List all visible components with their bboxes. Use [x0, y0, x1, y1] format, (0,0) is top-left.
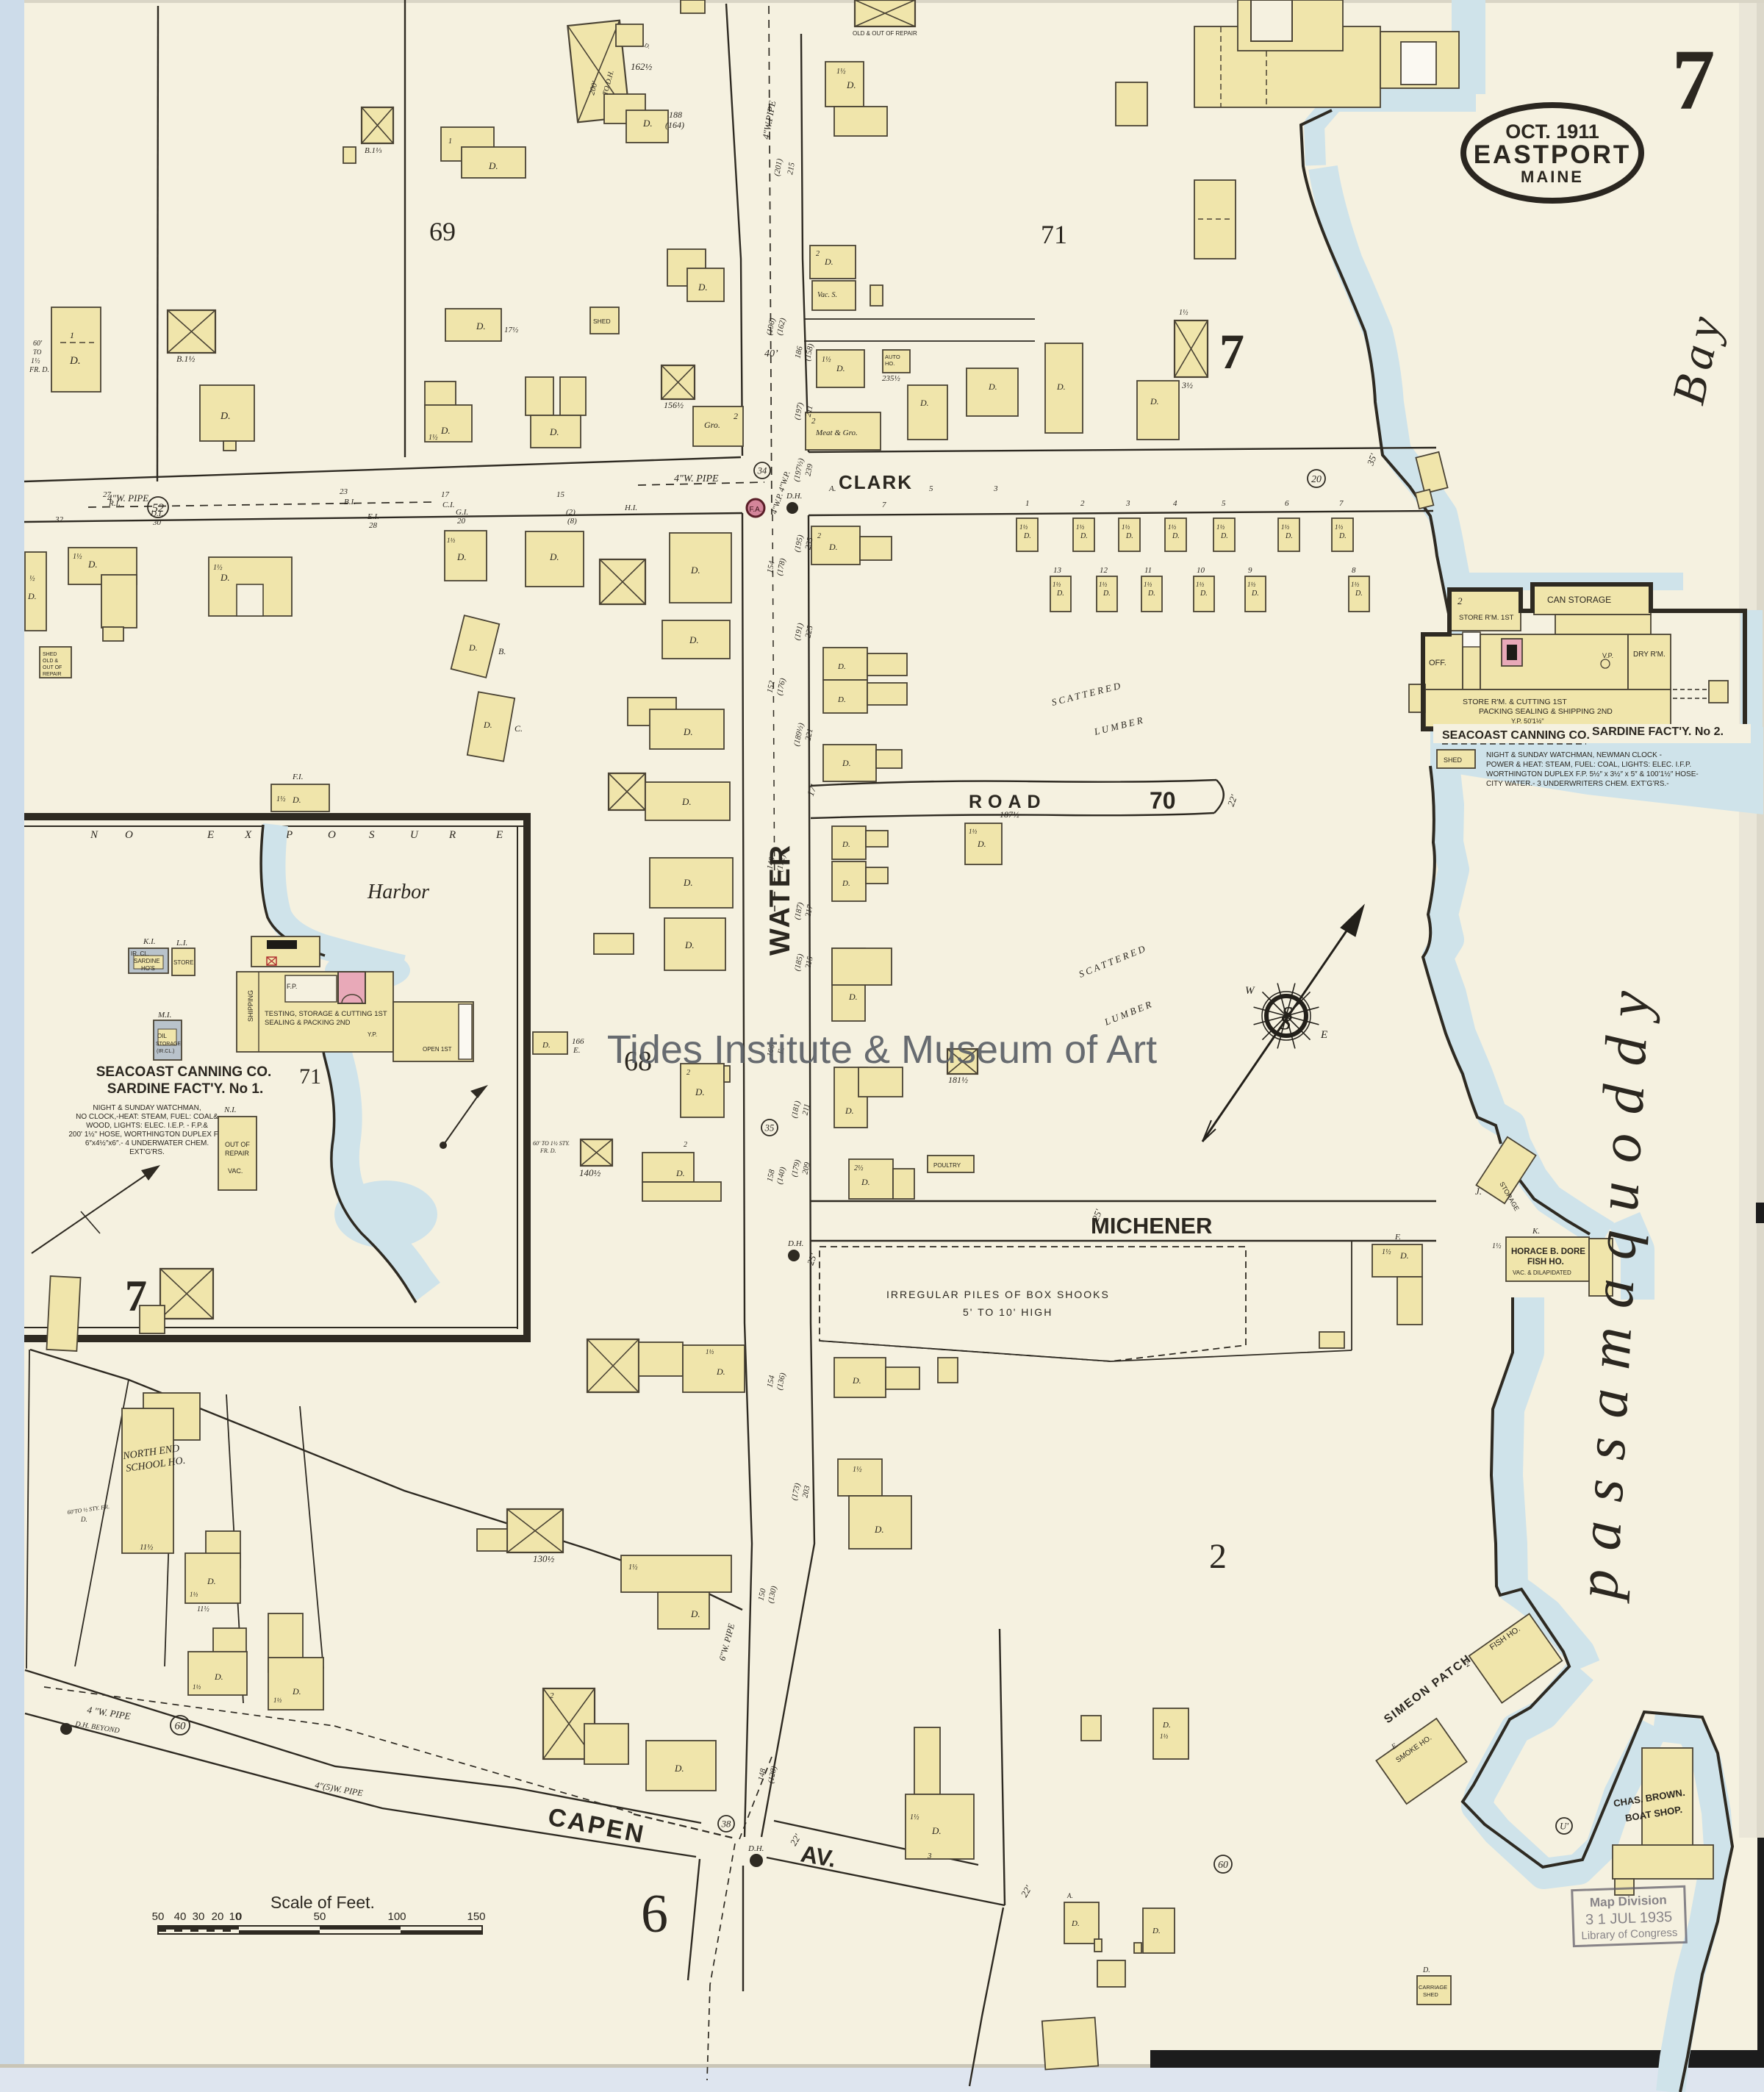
- svg-text:3: 3: [927, 1852, 932, 1860]
- svg-text:VAC. & DILAPIDATED: VAC. & DILAPIDATED: [1513, 1269, 1571, 1276]
- svg-text:SHED: SHED: [43, 652, 57, 657]
- svg-text:E.: E.: [573, 1046, 580, 1055]
- svg-text:2: 2: [684, 1141, 687, 1149]
- svg-text:D.: D.: [698, 282, 708, 293]
- svg-text:Tides Institute & Museum of Ar: Tides Institute & Museum of Art: [607, 1028, 1157, 1072]
- svg-text:69: 69: [429, 217, 456, 246]
- svg-text:1: 1: [1025, 499, 1030, 508]
- svg-text:D.: D.: [977, 839, 986, 849]
- svg-text:1½: 1½: [1492, 1242, 1502, 1250]
- svg-text:D.: D.: [1251, 590, 1259, 598]
- svg-text:1½: 1½: [1053, 581, 1061, 588]
- svg-text:30: 30: [152, 518, 162, 527]
- svg-text:K.: K.: [1532, 1227, 1540, 1236]
- svg-text:D.: D.: [1080, 532, 1088, 540]
- svg-text:4: 4: [1173, 499, 1177, 508]
- svg-text:D.: D.: [456, 551, 467, 562]
- svg-text:½: ½: [29, 575, 35, 583]
- svg-text:11: 11: [1144, 566, 1152, 575]
- svg-text:27: 27: [103, 490, 112, 499]
- svg-text:R: R: [448, 829, 456, 841]
- svg-text:1½: 1½: [853, 1466, 862, 1474]
- svg-text:1½: 1½: [836, 68, 846, 76]
- svg-text:B.1⅓: B.1⅓: [365, 146, 382, 155]
- svg-text:D.: D.: [292, 795, 301, 805]
- svg-text:W: W: [1245, 985, 1255, 997]
- svg-text:6″x4½″x6″.- 4 UNDERWATER CHEM.: 6″x4½″x6″.- 4 UNDERWATER CHEM.: [85, 1139, 209, 1147]
- svg-text:D.: D.: [861, 1177, 870, 1187]
- svg-text:1½: 1½: [1019, 523, 1028, 531]
- svg-text:N.I.: N.I.: [223, 1106, 237, 1114]
- svg-text:52: 52: [152, 502, 164, 515]
- svg-text:50: 50: [314, 1910, 326, 1923]
- svg-text:D.: D.: [27, 591, 37, 601]
- svg-text:(2): (2): [566, 508, 576, 517]
- svg-text:D.: D.: [674, 1763, 684, 1774]
- svg-text:D.: D.: [988, 381, 997, 392]
- svg-text:HO'S: HO'S: [141, 965, 155, 972]
- svg-text:HO.: HO.: [885, 360, 894, 367]
- svg-text:C.I.: C.I.: [442, 501, 455, 509]
- svg-text:5: 5: [929, 484, 933, 493]
- svg-text:SHIPPING: SHIPPING: [247, 990, 254, 1022]
- svg-text:2: 2: [550, 1691, 554, 1700]
- svg-text:17½: 17½: [504, 326, 518, 334]
- svg-text:1: 1: [70, 330, 74, 340]
- svg-text:100: 100: [387, 1910, 406, 1923]
- svg-text:D.: D.: [207, 1576, 216, 1586]
- svg-text:1: 1: [448, 137, 452, 146]
- svg-text:Vac. S.: Vac. S.: [817, 291, 837, 299]
- svg-text:1½: 1½: [1382, 1248, 1391, 1256]
- svg-text:U': U': [1560, 1821, 1568, 1832]
- svg-text:F.I.: F.I.: [292, 773, 303, 781]
- svg-text:F.A.: F.A.: [749, 506, 761, 514]
- svg-text:D.: D.: [842, 758, 851, 768]
- svg-text:AUTO: AUTO: [885, 354, 900, 360]
- svg-text:D.: D.: [468, 642, 478, 653]
- svg-text:CARRIAGE: CARRIAGE: [1419, 1984, 1447, 1991]
- svg-text:2: 2: [1458, 595, 1463, 606]
- svg-text:D.: D.: [69, 355, 81, 367]
- svg-text:D.: D.: [852, 1375, 861, 1386]
- svg-text:187½: 187½: [1000, 809, 1019, 820]
- svg-text:D.: D.: [874, 1524, 884, 1535]
- svg-text:1½: 1½: [1196, 581, 1205, 588]
- svg-text:D.: D.: [87, 559, 98, 570]
- svg-text:OLD & OUT OF REPAIR: OLD & OUT OF REPAIR: [853, 30, 917, 37]
- svg-text:D.: D.: [80, 1516, 87, 1523]
- svg-text:D.: D.: [695, 1086, 705, 1097]
- svg-text:STORAGE: STORAGE: [156, 1042, 181, 1047]
- svg-text:F.: F.: [1394, 1233, 1401, 1242]
- svg-text:NIGHT & SUNDAY WATCHMAN,: NIGHT & SUNDAY WATCHMAN,: [93, 1104, 201, 1112]
- svg-text:D.: D.: [1056, 381, 1066, 392]
- svg-text:Map Division: Map Division: [1590, 1893, 1667, 1910]
- svg-text:Harbor: Harbor: [367, 881, 429, 903]
- svg-text:28: 28: [369, 521, 378, 530]
- svg-text:D.: D.: [1355, 590, 1363, 598]
- svg-text:38: 38: [721, 1819, 731, 1830]
- svg-text:60' TO 1½ STY.: 60' TO 1½ STY.: [533, 1140, 570, 1147]
- svg-text:MAINE: MAINE: [1521, 168, 1584, 186]
- svg-text:D.: D.: [292, 1686, 301, 1697]
- svg-text:D.: D.: [842, 840, 850, 849]
- svg-text:1½: 1½: [822, 356, 831, 364]
- svg-text:200' 1½" HOSE, WORTHINGTON DUP: 200' 1½" HOSE, WORTHINGTON DUPLEX F.P.: [68, 1131, 225, 1139]
- svg-text:L.I.: L.I.: [176, 939, 187, 948]
- svg-text:D.: D.: [542, 1041, 551, 1050]
- svg-text:NO CLOCK,-HEAT: STEAM, FUEL: C: NO CLOCK,-HEAT: STEAM, FUEL: COAL&: [76, 1113, 218, 1121]
- svg-text:Scale of Feet.: Scale of Feet.: [270, 1893, 375, 1912]
- svg-text:REPAIR: REPAIR: [43, 672, 62, 677]
- svg-text:1½: 1½: [1216, 523, 1225, 531]
- svg-text:7: 7: [1672, 32, 1715, 128]
- svg-text:1½: 1½: [1099, 581, 1108, 588]
- svg-text:E: E: [207, 829, 214, 841]
- svg-text:Y.P. 50'1½": Y.P. 50'1½": [1511, 717, 1544, 725]
- svg-text:1½: 1½: [910, 1813, 919, 1821]
- svg-text:E: E: [1320, 1029, 1327, 1041]
- svg-text:E.I.: E.I.: [367, 512, 379, 521]
- svg-text:D.: D.: [848, 992, 858, 1002]
- svg-text:H.I.: H.I.: [624, 504, 637, 512]
- svg-text:12: 12: [1100, 566, 1108, 575]
- svg-text:34: 34: [757, 466, 767, 476]
- svg-text:B.1½: B.1½: [176, 354, 195, 364]
- svg-text:6: 6: [1285, 499, 1289, 508]
- svg-text:9: 9: [1248, 566, 1252, 575]
- svg-text:IR. CL.: IR. CL.: [131, 950, 149, 957]
- svg-text:POULTRY: POULTRY: [933, 1162, 961, 1169]
- svg-text:D.: D.: [1150, 396, 1159, 406]
- svg-text:CITY WATER.- 3 UNDERWRITERS CH: CITY WATER.- 3 UNDERWRITERS CHEM. EXT’G’…: [1486, 780, 1669, 788]
- svg-text:EXT'G'RS.: EXT'G'RS.: [129, 1148, 165, 1156]
- svg-text:D.: D.: [483, 720, 492, 730]
- svg-text:D.: D.: [842, 879, 850, 888]
- svg-text:Meat & Gro.: Meat & Gro.: [815, 429, 858, 437]
- svg-text:2: 2: [816, 250, 820, 258]
- svg-text:D.: D.: [683, 726, 693, 737]
- svg-text:70: 70: [1150, 787, 1176, 814]
- svg-text:1½: 1½: [1076, 523, 1085, 531]
- svg-text:O: O: [328, 829, 336, 841]
- svg-text:SARDINE FACT'Y. No 1.: SARDINE FACT'Y. No 1.: [107, 1081, 264, 1097]
- svg-text:D.: D.: [824, 257, 833, 267]
- svg-text:U: U: [410, 829, 419, 841]
- svg-text:C.: C.: [514, 723, 523, 734]
- svg-text:D.: D.: [1152, 1927, 1161, 1935]
- svg-text:M.I.: M.I.: [157, 1011, 171, 1020]
- svg-text:11½: 11½: [140, 1543, 153, 1552]
- svg-text:60': 60': [33, 340, 43, 348]
- svg-text:1½: 1½: [31, 357, 40, 365]
- svg-text:71: 71: [299, 1064, 321, 1089]
- svg-text:D.: D.: [476, 320, 486, 332]
- svg-text:WORTHINGTON DUPLEX F.P. 5½″ x: WORTHINGTON DUPLEX F.P. 5½″ x 3½″ x 5″ &…: [1486, 770, 1699, 778]
- svg-text:D.: D.: [214, 1672, 223, 1682]
- svg-text:60: 60: [175, 1720, 186, 1732]
- svg-text:1½: 1½: [1351, 581, 1360, 588]
- svg-text:(IR.CL.): (IR.CL.): [157, 1049, 175, 1054]
- svg-text:D.H.: D.H.: [787, 1239, 803, 1248]
- svg-text:OCT. 1911: OCT. 1911: [1505, 121, 1599, 143]
- svg-text:2: 2: [1209, 1537, 1227, 1576]
- svg-text:D.: D.: [1071, 1919, 1080, 1928]
- svg-text:D.: D.: [440, 425, 451, 436]
- svg-text:D.: D.: [1399, 1250, 1409, 1261]
- svg-text:D.: D.: [1125, 532, 1133, 540]
- svg-text:11½: 11½: [197, 1605, 209, 1613]
- svg-text:Y.P.: Y.P.: [367, 1031, 377, 1038]
- svg-text:SHED: SHED: [1444, 756, 1463, 764]
- svg-text:20: 20: [1311, 473, 1322, 484]
- svg-text:D.: D.: [1172, 532, 1180, 540]
- svg-text:D.: D.: [1220, 532, 1228, 540]
- svg-text:5' TO 10' HIGH: 5' TO 10' HIGH: [963, 1306, 1053, 1318]
- svg-text:2: 2: [817, 532, 821, 540]
- svg-text:15: 15: [556, 490, 565, 499]
- svg-text:N: N: [90, 829, 98, 841]
- svg-text:D.H.: D.H.: [786, 492, 802, 501]
- svg-text:R.I.: R.I.: [108, 499, 121, 508]
- svg-text:D.: D.: [549, 426, 559, 437]
- svg-text:1½: 1½: [273, 1697, 282, 1704]
- svg-text:35: 35: [764, 1123, 775, 1133]
- svg-text:DRY R'M.: DRY R'M.: [1633, 651, 1666, 659]
- svg-text:D.: D.: [488, 160, 498, 171]
- svg-text:A.: A.: [828, 484, 836, 493]
- svg-text:2: 2: [734, 411, 738, 421]
- svg-text:166: 166: [572, 1037, 584, 1046]
- svg-text:D.: D.: [1285, 532, 1293, 540]
- svg-text:3 1 JUL 1935: 3 1 JUL 1935: [1585, 1909, 1673, 1928]
- svg-text:IRREGULAR PILES OF BO: IRREGULAR PILES OF BOX SHOOKS: [886, 1289, 1110, 1300]
- svg-text:D.: D.: [919, 398, 929, 408]
- svg-text:40: 40: [174, 1910, 187, 1923]
- svg-text:156½: 156½: [664, 400, 684, 410]
- svg-text:1½: 1½: [628, 1563, 638, 1572]
- svg-text:17: 17: [441, 490, 450, 499]
- svg-text:D.: D.: [828, 542, 838, 552]
- svg-text:1½: 1½: [213, 564, 223, 572]
- svg-text:D.: D.: [837, 662, 846, 671]
- svg-text:D.: D.: [1102, 590, 1111, 598]
- svg-text:OUT OF: OUT OF: [225, 1141, 250, 1148]
- svg-text:5: 5: [1222, 499, 1226, 508]
- svg-text:FISH HO.: FISH HO.: [1527, 1258, 1564, 1267]
- svg-text:STORE R'M. & CUTTING 1ST: STORE R'M. & CUTTING 1ST: [1463, 698, 1567, 706]
- svg-text:K.I.: K.I.: [143, 937, 156, 946]
- svg-text:O: O: [125, 829, 133, 841]
- svg-text:B.: B.: [498, 646, 506, 656]
- svg-text:STORE R'M. 1ST: STORE R'M. 1ST: [1459, 614, 1514, 622]
- svg-text:SEACOAST CANNING CO.: SEACOAST CANNING CO.: [1442, 729, 1590, 742]
- svg-text:1½: 1½: [1179, 309, 1188, 317]
- svg-text:60: 60: [1218, 1859, 1228, 1870]
- svg-text:32: 32: [54, 515, 64, 524]
- svg-text:X: X: [244, 829, 252, 841]
- svg-text:D.: D.: [549, 551, 559, 562]
- svg-text:D.: D.: [1338, 532, 1347, 540]
- svg-text:3½: 3½: [1181, 380, 1193, 390]
- svg-text:E: E: [495, 829, 503, 841]
- svg-text:PACKING SEALING & SHIPPING 2ND: PACKING SEALING & SHIPPING 2ND: [1479, 707, 1613, 716]
- svg-text:3: 3: [1125, 499, 1130, 508]
- svg-text:D.: D.: [1056, 590, 1064, 598]
- svg-text:71: 71: [1041, 220, 1067, 249]
- svg-text:D.H.: D.H.: [747, 1844, 764, 1853]
- svg-text:F.P.: F.P.: [287, 983, 297, 990]
- svg-text:STORE: STORE: [173, 959, 193, 966]
- svg-text:13: 13: [1053, 566, 1062, 575]
- svg-text:1½: 1½: [429, 434, 438, 442]
- svg-text:CAN STORAGE: CAN STORAGE: [1547, 595, 1611, 605]
- svg-text:1½: 1½: [193, 1683, 201, 1691]
- svg-text:POWER & HEAT: STEAM, FUEL: COA: POWER & HEAT: STEAM, FUEL: COAL, LIGHTS:…: [1486, 761, 1691, 769]
- svg-text:D.: D.: [690, 565, 700, 576]
- svg-text:D.: D.: [642, 118, 653, 129]
- svg-text:1½: 1½: [447, 537, 456, 544]
- svg-text:TO: TO: [33, 348, 42, 356]
- svg-text:D.: D.: [675, 1168, 685, 1178]
- svg-text:EASTPORT: EASTPORT: [1474, 140, 1632, 169]
- svg-text:D.: D.: [716, 1366, 725, 1377]
- svg-text:V.P.: V.P.: [1602, 652, 1613, 659]
- svg-text:D.: D.: [684, 939, 695, 950]
- svg-text:23: 23: [340, 487, 348, 496]
- svg-text:OLD &: OLD &: [43, 659, 58, 664]
- svg-text:140½: 140½: [579, 1167, 601, 1178]
- svg-text:D.: D.: [681, 796, 692, 807]
- svg-text:40’: 40’: [764, 348, 778, 359]
- svg-text:20: 20: [457, 517, 466, 526]
- svg-text:1½: 1½: [969, 828, 978, 835]
- svg-text:6: 6: [641, 1884, 668, 1944]
- svg-text:7: 7: [1339, 499, 1344, 508]
- svg-text:1½: 1½: [1160, 1733, 1169, 1740]
- svg-text:SEACOAST CANNING CO.: SEACOAST CANNING CO.: [96, 1064, 272, 1080]
- svg-text:D.: D.: [1023, 532, 1031, 540]
- svg-text:1½: 1½: [276, 795, 286, 803]
- svg-text:1½: 1½: [73, 553, 82, 561]
- svg-text:CLARK: CLARK: [839, 471, 913, 493]
- svg-text:188: 188: [669, 110, 682, 120]
- svg-text:OPEN 1ST: OPEN 1ST: [423, 1046, 452, 1053]
- svg-text:G.I.: G.I.: [456, 508, 468, 517]
- svg-text:130½: 130½: [533, 1553, 555, 1564]
- svg-text:20: 20: [212, 1910, 224, 1923]
- svg-text:1½: 1½: [1144, 581, 1152, 588]
- svg-text:30: 30: [193, 1910, 205, 1923]
- svg-text:WOOD, LIGHTS: ELEC. I.E.P. -: WOOD, LIGHTS: ELEC. I.E.P. - F.P.&: [86, 1122, 208, 1130]
- svg-text:181½: 181½: [948, 1075, 968, 1085]
- svg-text:SEALING & PACKING 2ND: SEALING & PACKING 2ND: [265, 1019, 351, 1027]
- svg-text:3: 3: [993, 484, 998, 493]
- svg-text:SHED: SHED: [1423, 1991, 1438, 1998]
- svg-text:D.: D.: [837, 695, 846, 704]
- svg-text:2: 2: [1080, 499, 1085, 508]
- svg-text:D.: D.: [845, 1106, 854, 1116]
- svg-text:10: 10: [1197, 566, 1205, 575]
- svg-text:VAC.: VAC.: [228, 1167, 243, 1175]
- svg-text:REPAIR: REPAIR: [225, 1150, 249, 1157]
- svg-text:FR. D.: FR. D.: [539, 1147, 556, 1154]
- svg-text:J.: J.: [1475, 1186, 1482, 1197]
- svg-text:Gro.: Gro.: [704, 420, 720, 430]
- svg-text:SHED: SHED: [593, 318, 611, 325]
- svg-text:D.: D.: [931, 1825, 942, 1836]
- svg-text:1½: 1½: [1335, 523, 1344, 531]
- svg-text:D.: D.: [683, 877, 693, 888]
- svg-text:162½: 162½: [631, 61, 653, 72]
- svg-text:A.: A.: [1066, 1892, 1073, 1899]
- svg-text:150: 150: [467, 1910, 485, 1923]
- svg-text:1½: 1½: [1122, 523, 1130, 531]
- svg-text:D.: D.: [689, 634, 699, 645]
- svg-text:50: 50: [152, 1910, 165, 1923]
- svg-text:D.: D.: [1147, 590, 1155, 598]
- svg-text:1½: 1½: [1247, 581, 1256, 588]
- svg-text:D.: D.: [1200, 590, 1208, 598]
- svg-text:D.: D.: [220, 572, 230, 583]
- svg-text:D.: D.: [220, 411, 231, 422]
- svg-text:7: 7: [882, 501, 886, 509]
- svg-text:TESTING, STORAGE & CUTTING 1ST: TESTING, STORAGE & CUTTING 1ST: [265, 1010, 387, 1018]
- svg-text:D.: D.: [1162, 1721, 1171, 1730]
- svg-text:D.: D.: [846, 79, 856, 90]
- svg-text:S: S: [369, 829, 375, 841]
- svg-text:SARDINE: SARDINE: [134, 958, 160, 964]
- svg-text:D.: D.: [836, 363, 845, 373]
- svg-text:D.: D.: [690, 1608, 700, 1619]
- svg-text:(8): (8): [567, 517, 577, 526]
- svg-text:HORACE B. DORE: HORACE B. DORE: [1511, 1247, 1585, 1256]
- svg-text:SARDINE FACT'Y. No 2.: SARDINE FACT'Y. No 2.: [1592, 726, 1724, 738]
- svg-text:MICHENER: MICHENER: [1091, 1213, 1212, 1239]
- svg-text:2½: 2½: [854, 1164, 864, 1172]
- svg-text:1½: 1½: [190, 1591, 198, 1598]
- svg-text:D.: D.: [1422, 1966, 1430, 1974]
- svg-text:OFF.: OFF.: [1429, 659, 1446, 667]
- svg-text:1½: 1½: [1281, 523, 1290, 531]
- svg-text:OUT OF: OUT OF: [43, 665, 62, 670]
- svg-text:235½: 235½: [882, 374, 900, 383]
- svg-text:NIGHT & SUNDAY WATCHMAN, NEWMA: NIGHT & SUNDAY WATCHMAN, NEWMAN CLOCK -: [1486, 751, 1662, 759]
- svg-text:1½: 1½: [1168, 523, 1177, 531]
- svg-text:4"W. PIPE: 4"W. PIPE: [674, 473, 719, 484]
- svg-text:7: 7: [1219, 323, 1244, 379]
- svg-text:(164): (164): [665, 120, 684, 130]
- svg-text:B.I.: B.I.: [344, 498, 356, 506]
- svg-text:8: 8: [1352, 566, 1356, 575]
- svg-text:1½: 1½: [706, 1348, 714, 1355]
- svg-text:§: §: [1280, 1002, 1294, 1033]
- svg-text:0: 0: [236, 1910, 242, 1923]
- svg-text:OIL: OIL: [157, 1033, 167, 1039]
- svg-text:FR. D.: FR. D.: [29, 366, 49, 374]
